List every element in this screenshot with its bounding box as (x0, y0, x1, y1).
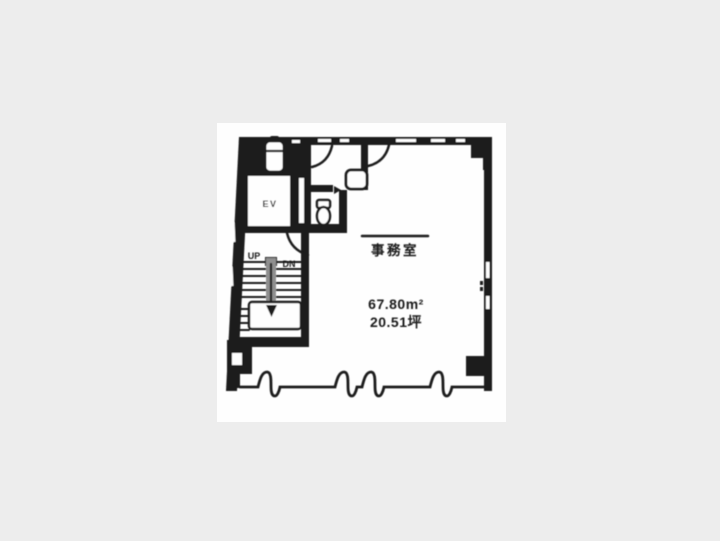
floor-plan-canvas: EV UP DN 事務室 67.80m² 20.51坪 (0, 0, 720, 541)
pipe-shaft-slit (299, 178, 304, 223)
toilet-bowl (317, 207, 330, 225)
top-window-slit-3 (340, 139, 349, 142)
top-window-slit-5 (431, 139, 445, 142)
pillar-bottom-left-notch (232, 353, 242, 365)
wc-partition-wall-right (339, 190, 347, 231)
right-window-mullion-tick-2 (480, 287, 483, 291)
top-window-slit-1 (292, 140, 300, 143)
pillar-bottom-left-step (227, 371, 240, 388)
right-window-mullion-tick-1 (480, 281, 483, 285)
pillar-bottom-right (466, 356, 484, 376)
office-room-label: 事務室 (371, 242, 419, 258)
right-window-slit-1 (486, 262, 490, 278)
top-window-slit-4 (396, 139, 416, 142)
top-window-slit-6 (456, 139, 465, 142)
toilet-icon (317, 200, 330, 225)
left-window-slit-2 (229, 267, 234, 286)
water-tank-body (265, 141, 284, 172)
area-sqm-label: 67.80m² (368, 296, 424, 312)
right-window-slit-2 (486, 296, 490, 309)
area-tsubo-label: 20.51坪 (370, 314, 422, 330)
stairwell-bottom-wall (229, 337, 309, 347)
water-tank-icon (265, 141, 284, 172)
stairs-down-label: DN (283, 259, 296, 269)
stairs-up-label: UP (248, 251, 261, 261)
floor-plan-screenshot: EV UP DN 事務室 67.80m² 20.51坪 (0, 0, 720, 541)
elevator-label: EV (262, 199, 277, 209)
wc-partition-wall-top (303, 185, 333, 192)
sink-icon (346, 170, 367, 189)
top-window-slit-2 (318, 139, 331, 142)
left-window-slit-1 (231, 223, 236, 242)
